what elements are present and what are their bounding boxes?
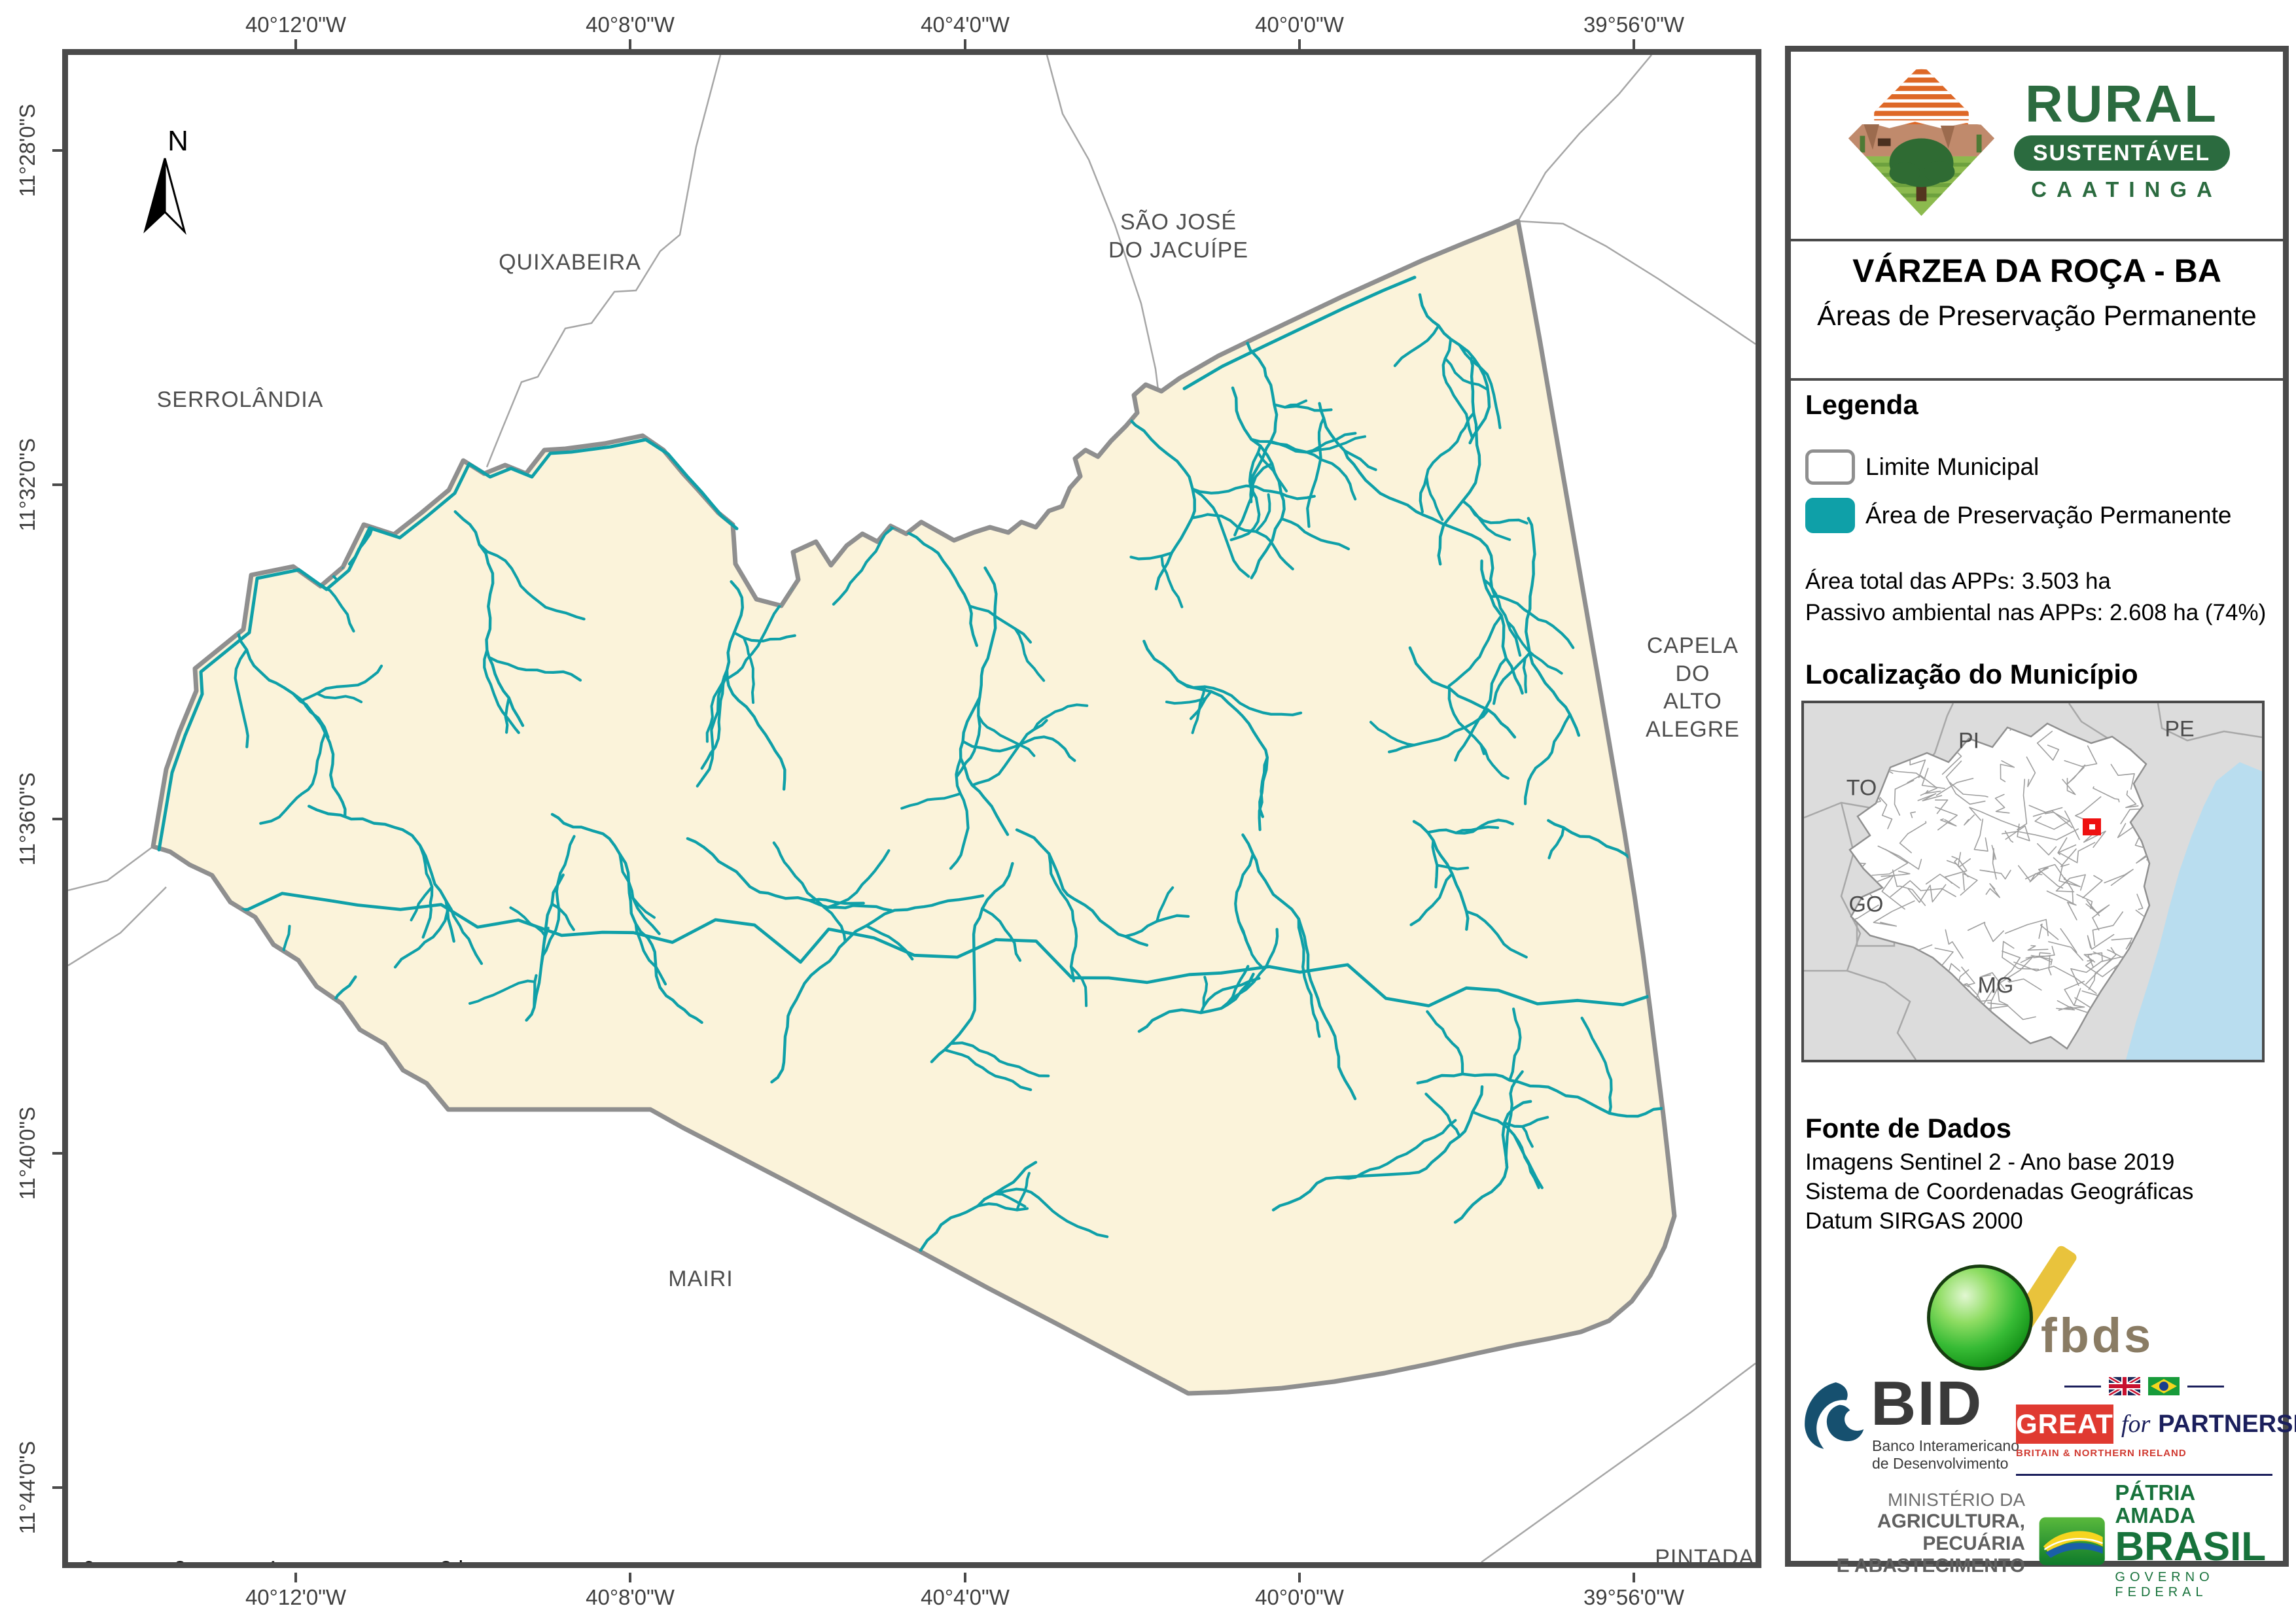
legend-item-limite: Limite Municipal [1805, 449, 2039, 485]
coord-top-4: 40°0'0"W [1255, 12, 1344, 37]
app-area-swatch [1805, 498, 1855, 533]
tick-top-1 [294, 39, 297, 49]
tick-left-1 [52, 149, 62, 152]
coord-left-4: 11°40'0"S [15, 1107, 40, 1200]
scalebar-label-4: 4 [265, 1557, 277, 1568]
north-arrow-label: N [168, 125, 188, 158]
brasil-text: PÁTRIA AMADA BRASIL GOVERNO FEDERAL [2115, 1482, 2274, 1600]
info-panel: RURAL SUSTENTÁVEL CAATINGA VÁRZEA DA ROÇ… [1785, 46, 2289, 1567]
scalebar-label-0: 0 [83, 1557, 96, 1568]
label-mairi: MAIRI [668, 1265, 733, 1293]
coord-bottom-4: 40°0'0"W [1255, 1585, 1344, 1610]
coord-top-5: 39°56'0"W [1583, 12, 1684, 37]
label-capela: CAPELA DO ALTO ALEGRE [1646, 632, 1740, 743]
municipality-marker [2083, 818, 2101, 835]
state-label-mg: MG [1978, 973, 2014, 999]
great-underline [2016, 1474, 2272, 1476]
fbds-sphere-icon [1927, 1265, 2033, 1370]
coord-top-3: 40°4'0"W [921, 12, 1010, 37]
great-partnership-logo: GREAT for PARTNERSHIP BRITAIN & NORTHERN… [2016, 1377, 2272, 1482]
bahia-inset-svg [1804, 703, 2262, 1060]
legend-heading: Legenda [1805, 389, 1918, 421]
bid-swoosh-icon [1800, 1377, 1865, 1454]
coord-bottom-5: 39°56'0"W [1583, 1585, 1684, 1610]
coord-top-2: 40°8'0"W [586, 12, 675, 37]
north-arrow-icon [145, 158, 185, 232]
state-label-pe: PE [2164, 717, 2194, 742]
state-label-pi: PI [1958, 729, 1979, 754]
tick-bottom-4 [1298, 1573, 1301, 1582]
tick-bottom-5 [1633, 1573, 1635, 1582]
tick-bottom-2 [629, 1573, 631, 1582]
source-line-2: Sistema de Coordenadas Geográficas [1805, 1179, 2193, 1205]
coord-left-1: 11°28'0"S [15, 104, 40, 198]
municipality-map-svg [68, 55, 1756, 1562]
coord-top-1: 40°12'0"W [245, 12, 346, 37]
uk-flag-icon [2109, 1377, 2140, 1395]
tick-bottom-1 [294, 1573, 297, 1582]
tick-left-5 [52, 1486, 62, 1489]
page: { "map": { "north": "N", "top_coords": [… [0, 0, 2296, 1623]
location-heading: Localização do Município [1805, 659, 2138, 690]
bid-subtitle: Banco Interamericano de Desenvolvimento [1872, 1437, 2019, 1473]
rural-sustentavel-logo: RURAL SUSTENTÁVEL CAATINGA [1791, 61, 2283, 219]
coord-left-2: 11°32'0"S [15, 438, 40, 532]
ministry-logo-text: MINISTÉRIO DA AGRICULTURA, PECUÁRIA E AB… [1795, 1490, 2025, 1577]
partnership-word: PARTNERSHIP [2158, 1410, 2296, 1439]
logo-word-rural: RURAL [2014, 78, 2230, 130]
location-inset-map: PI TO GO MG PE [1801, 701, 2265, 1062]
bid-wordmark: BID [1871, 1368, 1983, 1440]
map-subtitle: Áreas de Preservação Permanente [1791, 300, 2283, 332]
coord-bottom-3: 40°4'0"W [921, 1585, 1010, 1610]
state-label-go: GO [1849, 892, 1884, 918]
divider [1791, 378, 2283, 381]
coord-left-5: 11°44'0"S [15, 1441, 40, 1535]
label-pintadas: PINTADAS [1655, 1544, 1761, 1568]
legend-item-app: Área de Preservação Permanente [1805, 498, 2231, 533]
source-line-3: Datum SIRGAS 2000 [1805, 1208, 2023, 1234]
coord-left-3: 11°36'0"S [15, 773, 40, 866]
label-serrolandia: SERROLÂNDIA [157, 386, 324, 414]
logo-word-sustentavel: SUSTENTÁVEL [2014, 135, 2230, 171]
municipality-polygon [153, 221, 1674, 1393]
tick-bottom-3 [964, 1573, 966, 1582]
coord-bottom-1: 40°12'0"W [245, 1585, 346, 1610]
logo-word-caatinga: CAATINGA [2014, 177, 2230, 202]
divider [1791, 239, 2283, 241]
legend-item-label: Área de Preservação Permanente [1865, 502, 2231, 529]
app-passivo-stat: Passivo ambiental nas APPs: 2.608 ha (74… [1805, 600, 2266, 626]
great-row: GREAT for PARTNERSHIP [2016, 1405, 2272, 1444]
patria-amada-brasil-logo: PÁTRIA AMADA BRASIL GOVERNO FEDERAL [2038, 1482, 2274, 1600]
brasil-flag-art-icon [2038, 1510, 2106, 1573]
limite-municipal-swatch [1805, 449, 1855, 485]
tick-top-2 [629, 39, 631, 49]
fbds-wordmark: fbds [2041, 1308, 2153, 1363]
tick-left-4 [52, 1152, 62, 1155]
tick-top-3 [964, 39, 966, 49]
map-title: VÁRZEA DA ROÇA - BA [1791, 252, 2283, 290]
rural-logo-diamond-icon [1845, 61, 1998, 219]
tick-left-3 [52, 818, 62, 820]
tick-left-2 [52, 483, 62, 486]
source-heading: Fonte de Dados [1805, 1113, 2011, 1144]
state-label-to: TO [1846, 776, 1877, 801]
coord-bottom-2: 40°8'0"W [586, 1585, 675, 1610]
brazil-flag-icon [2148, 1377, 2180, 1395]
source-line-1: Imagens Sentinel 2 - Ano base 2019 [1805, 1149, 2174, 1176]
scalebar-label-8km: 8 km [440, 1557, 488, 1568]
fbds-logo: fbds [1893, 1248, 2181, 1372]
label-quixabeira: QUIXABEIRA [499, 249, 641, 277]
tick-top-4 [1298, 39, 1301, 49]
tick-top-5 [1633, 39, 1635, 49]
great-box: GREAT [2016, 1405, 2113, 1444]
bid-logo: BID Banco Interamericano de Desenvolvime… [1800, 1377, 2009, 1475]
main-map: QUIXABEIRA SERROLÂNDIA SÃO JOSÉ DO JACUÍ… [62, 49, 1761, 1568]
label-sao-jose: SÃO JOSÉ DO JACUÍPE [1108, 209, 1248, 264]
app-total-stat: Área total das APPs: 3.503 ha [1805, 568, 2111, 595]
scalebar-label-2: 2 [174, 1557, 186, 1568]
great-for: for [2121, 1410, 2150, 1439]
great-subtitle: BRITAIN & NORTHERN IRELAND [2016, 1448, 2187, 1459]
flags-row [2016, 1377, 2272, 1395]
legend-item-label: Limite Municipal [1865, 453, 2039, 481]
